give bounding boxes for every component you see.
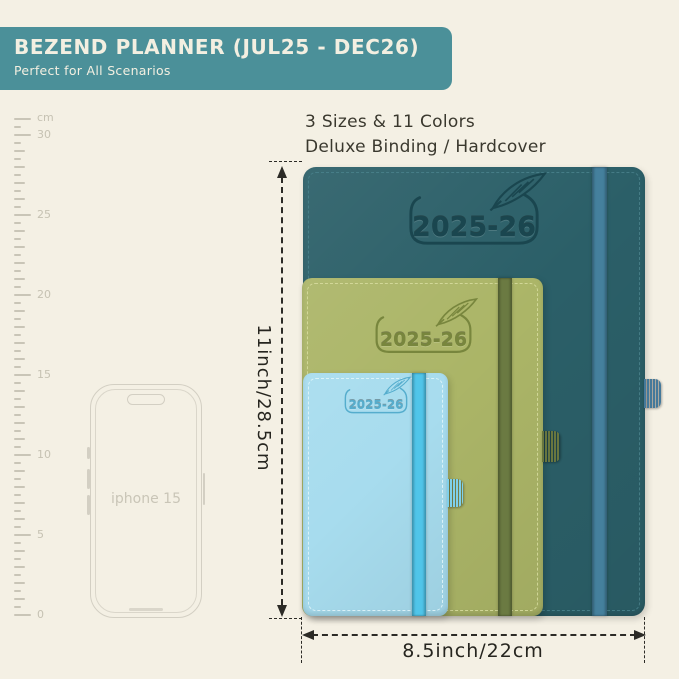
ruler-tick — [14, 366, 21, 368]
feather-icon — [489, 171, 549, 212]
year-text: 2025-26 — [373, 329, 474, 351]
right-guide-line — [644, 617, 645, 663]
ruler-tick — [14, 286, 21, 288]
left-guide-line — [301, 617, 302, 663]
ruler-tick — [14, 158, 21, 160]
ruler-tick-label: 0 — [37, 608, 44, 621]
ruler-tick-label: 30 — [37, 128, 51, 141]
ruler-tick — [14, 230, 25, 232]
feather-icon — [383, 376, 412, 396]
ruler-tick — [14, 526, 21, 528]
ruler-tick — [14, 150, 25, 152]
ruler-tick — [14, 198, 25, 200]
phone-outline: iphone 15 — [90, 384, 202, 618]
ruler-tick — [14, 590, 21, 592]
ruler-tick — [14, 390, 25, 392]
height-dimension-label: 11inch/28.5cm — [250, 288, 274, 508]
ruler-tick — [14, 294, 31, 296]
ruler-tick — [14, 302, 21, 304]
ruler-tick — [14, 454, 31, 456]
phone-home-indicator — [129, 608, 163, 611]
ruler-tick — [14, 190, 21, 192]
ruler-tick — [14, 582, 25, 584]
ruler-tick — [14, 398, 21, 400]
ruler-tick — [14, 542, 21, 544]
top-reference-dash — [269, 161, 302, 162]
year-text: 2025-26 — [406, 212, 542, 243]
phone-volume-down-button — [87, 495, 90, 515]
ruler-tick — [14, 278, 25, 280]
year-logo: 2025-26 — [343, 385, 409, 416]
ruler-tick — [14, 174, 21, 176]
ruler-tick — [14, 486, 25, 488]
ruler-tick — [14, 606, 21, 608]
ruler-tick — [14, 262, 25, 264]
ruler-tick — [14, 254, 21, 256]
arrow-down-icon — [277, 605, 287, 617]
ruler-tick-label: 25 — [37, 208, 51, 221]
banner: BEZEND PLANNER (JUL25 - DEC26) Perfect f… — [0, 27, 452, 90]
ruler-tick — [14, 374, 31, 376]
ruler-tick — [14, 614, 31, 616]
ruler-tick — [14, 126, 21, 128]
ruler-tick — [14, 430, 21, 432]
ruler-tick-label: 10 — [37, 448, 51, 461]
ruler-tick — [14, 118, 31, 120]
ruler-tick — [14, 214, 31, 216]
year-logo: 2025-26 — [406, 188, 542, 250]
ruler-tick — [14, 478, 21, 480]
height-dimension-line — [281, 177, 283, 605]
ruler-tick — [14, 182, 25, 184]
ruler-tick — [14, 598, 25, 600]
arrow-left-icon — [302, 630, 314, 640]
ruler-tick — [14, 494, 21, 496]
feather-icon — [435, 297, 479, 327]
ruler-tick — [14, 166, 25, 168]
elastic-band — [498, 278, 512, 616]
ruler-tick — [14, 382, 21, 384]
elastic-band — [412, 373, 426, 616]
ruler-tick — [14, 334, 21, 336]
ruler-tick — [14, 134, 31, 136]
ruler-tick — [14, 510, 21, 512]
ruler-tick — [14, 566, 25, 568]
ruler-tick — [14, 350, 21, 352]
ruler-tick — [14, 462, 21, 464]
ruler-tick — [14, 310, 25, 312]
product-image: BEZEND PLANNER (JUL25 - DEC26) Perfect f… — [0, 0, 679, 679]
ruler-tick — [14, 422, 25, 424]
ruler-tick — [14, 206, 21, 208]
ruler-tick — [14, 518, 25, 520]
ruler-tick — [14, 534, 31, 536]
ruler-tick — [14, 558, 21, 560]
banner-title: BEZEND PLANNER (JUL25 - DEC26) — [14, 35, 452, 59]
headline: 3 Sizes & 11 Colors Deluxe Binding / Har… — [305, 110, 546, 160]
year-logo: 2025-26 — [373, 310, 474, 357]
ruler-tick — [14, 222, 21, 224]
ruler-tick — [14, 318, 21, 320]
ruler-tick — [14, 438, 25, 440]
arrow-up-icon — [277, 166, 287, 178]
ruler-unit-label: cm — [37, 111, 54, 124]
banner-subtitle: Perfect for All Scenarios — [14, 63, 452, 78]
ruler-tick — [14, 550, 25, 552]
ruler-tick-label: 5 — [37, 528, 44, 541]
pen-loop — [447, 479, 463, 507]
phone-power-button — [203, 473, 206, 505]
width-dimension-line — [312, 634, 636, 636]
planner-small: 2025-26 — [303, 373, 448, 616]
ruler-tick — [14, 238, 21, 240]
pen-loop — [542, 431, 560, 462]
ruler-tick — [14, 574, 21, 576]
width-dimension-label: 8.5inch/22cm — [373, 640, 573, 662]
headline-line-1: 3 Sizes & 11 Colors — [305, 110, 546, 135]
ruler-tick — [14, 446, 21, 448]
ruler-tick — [14, 326, 25, 328]
phone-volume-up-button — [87, 469, 90, 489]
ruler-tick-label: 20 — [37, 288, 51, 301]
ruler-tick — [14, 406, 25, 408]
phone-mute-button — [87, 447, 90, 459]
ruler-tick — [14, 414, 21, 416]
ruler-tick — [14, 142, 21, 144]
ruler-tick — [14, 270, 21, 272]
ruler-tick — [14, 502, 25, 504]
year-text: 2025-26 — [343, 398, 409, 412]
ruler-tick-label: 15 — [37, 368, 51, 381]
headline-line-2: Deluxe Binding / Hardcover — [305, 135, 546, 160]
bottom-reference-dash — [269, 618, 302, 619]
phone-dynamic-island — [127, 394, 165, 405]
phone-label: iphone 15 — [91, 491, 201, 507]
ruler-tick — [14, 470, 25, 472]
ruler-tick — [14, 246, 25, 248]
ruler-tick — [14, 342, 25, 344]
elastic-band — [592, 167, 607, 616]
pen-loop — [644, 379, 661, 408]
ruler-tick — [14, 358, 25, 360]
